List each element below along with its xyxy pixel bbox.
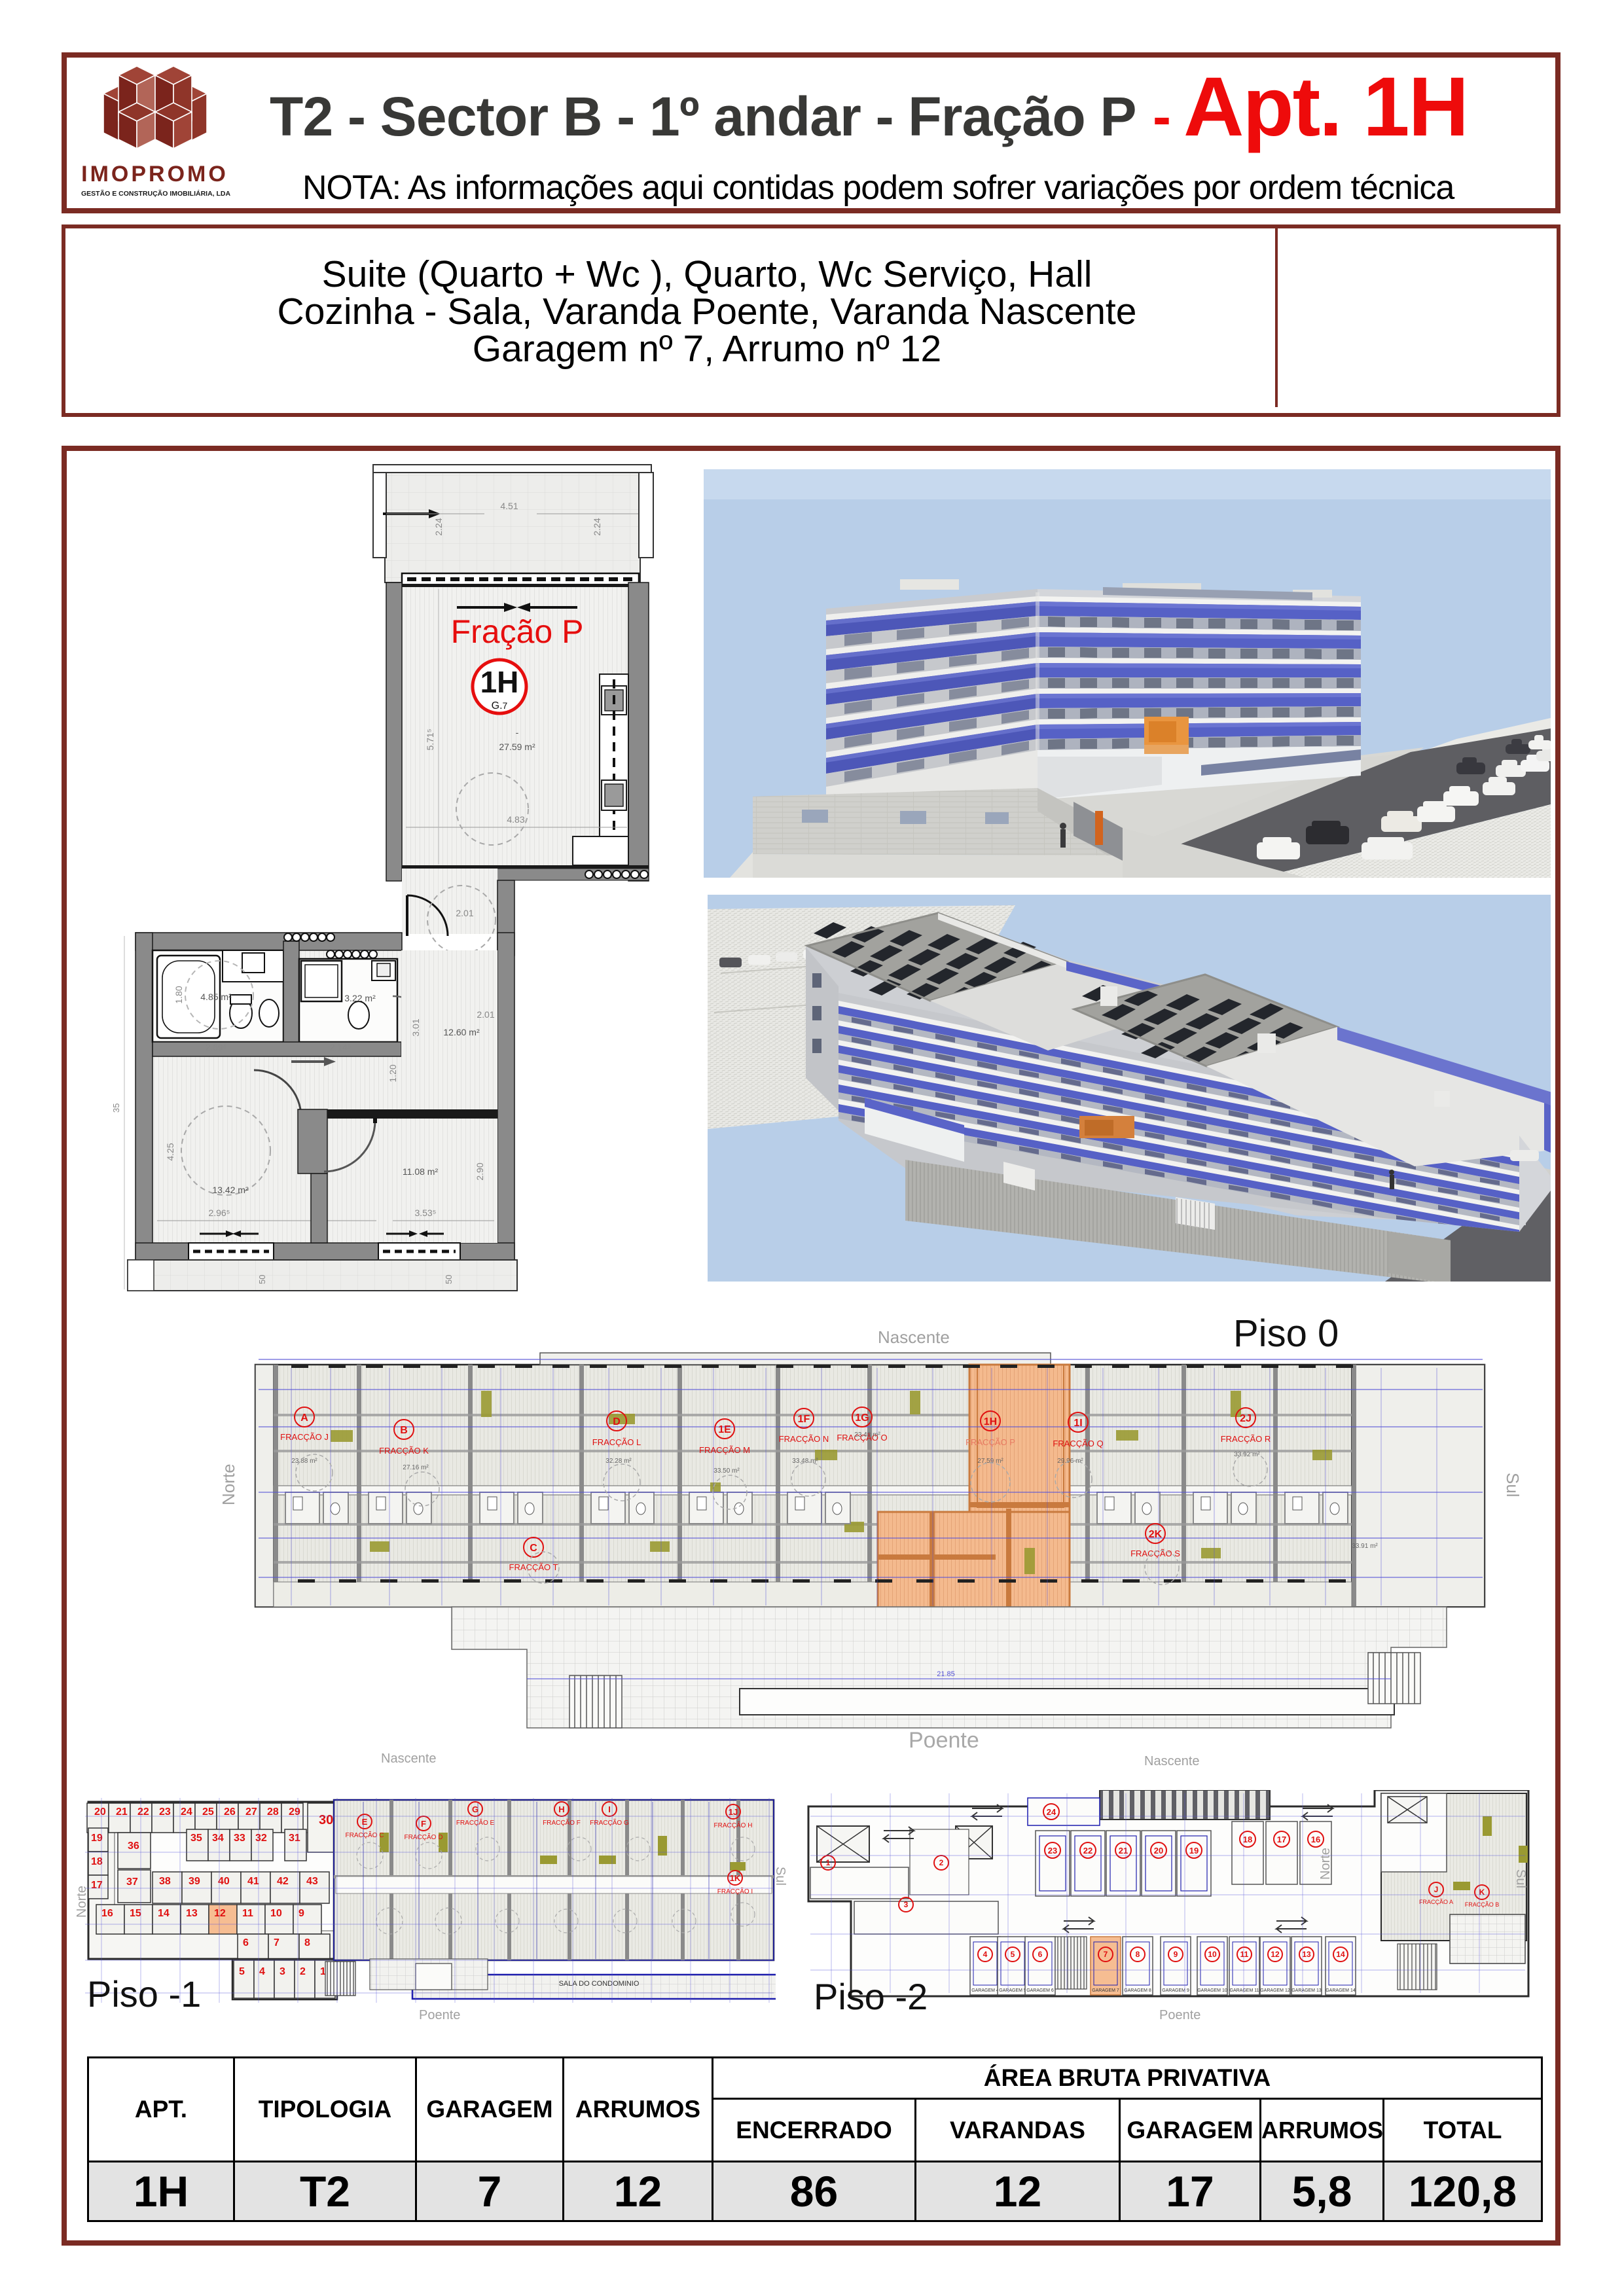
svg-text:GARAGEM 14: GARAGEM 14 — [1326, 1988, 1356, 1993]
svg-text:33: 33 — [234, 1833, 245, 1844]
svg-text:12.60 m²: 12.60 m² — [443, 1027, 480, 1037]
svg-text:FRACÇÃO S: FRACÇÃO S — [1130, 1549, 1180, 1558]
svg-text:FRACÇÃO G: FRACÇÃO G — [590, 1818, 629, 1827]
svg-text:31: 31 — [289, 1833, 300, 1844]
svg-text:24: 24 — [1047, 1807, 1056, 1817]
svg-text:3.01: 3.01 — [410, 1018, 421, 1036]
svg-text:35: 35 — [190, 1833, 202, 1844]
svg-text:-: - — [516, 727, 519, 738]
svg-text:3.22 m²: 3.22 m² — [344, 993, 376, 1003]
svg-text:K: K — [1479, 1888, 1485, 1897]
svg-text:21: 21 — [1119, 1846, 1128, 1856]
svg-text:18: 18 — [91, 1856, 103, 1867]
svg-text:32: 32 — [255, 1833, 267, 1844]
svg-text:GARAGEM 10: GARAGEM 10 — [1197, 1988, 1227, 1993]
svg-text:43: 43 — [306, 1876, 318, 1887]
svg-text:27: 27 — [245, 1806, 257, 1818]
svg-text:FRACÇÃO B: FRACÇÃO B — [1465, 1901, 1500, 1908]
svg-text:4.25: 4.25 — [165, 1143, 175, 1160]
svg-text:18: 18 — [1243, 1835, 1252, 1844]
svg-text:29.96 m²: 29.96 m² — [1057, 1458, 1083, 1465]
svg-text:39: 39 — [189, 1876, 200, 1887]
svg-text:3: 3 — [904, 1900, 909, 1909]
svg-text:G: G — [472, 1804, 478, 1814]
svg-text:1F: 1F — [798, 1414, 810, 1425]
svg-text:GARAGEM 4: GARAGEM 4 — [971, 1988, 999, 1993]
svg-text:H: H — [558, 1804, 564, 1814]
svg-text:FRACÇÃO C: FRACÇÃO C — [346, 1831, 384, 1839]
svg-text:1H: 1H — [480, 665, 519, 699]
svg-text:GARAGEM 11: GARAGEM 11 — [1230, 1988, 1259, 1993]
svg-text:21: 21 — [116, 1806, 128, 1818]
svg-text:13: 13 — [186, 1908, 198, 1919]
svg-text:G.7: G.7 — [492, 700, 508, 711]
svg-text:2.96⁵: 2.96⁵ — [208, 1208, 230, 1218]
svg-text:GARAGEM 12: GARAGEM 12 — [1260, 1988, 1290, 1993]
svg-text:33.91 m²: 33.91 m² — [1352, 1543, 1378, 1550]
svg-text:GARAGEM 8: GARAGEM 8 — [1124, 1988, 1151, 1993]
svg-text:11: 11 — [242, 1908, 253, 1919]
svg-text:FRACÇÃO Q: FRACÇÃO Q — [1053, 1439, 1103, 1448]
svg-text:19: 19 — [1189, 1846, 1199, 1856]
svg-text:FRACÇÃO M: FRACÇÃO M — [699, 1445, 750, 1455]
svg-text:FRACÇÃO P: FRACÇÃO P — [965, 1437, 1015, 1447]
svg-text:GARAGEM 6: GARAGEM 6 — [1026, 1988, 1054, 1993]
svg-text:8: 8 — [304, 1937, 310, 1948]
svg-text:21.85: 21.85 — [937, 1670, 955, 1678]
svg-text:2.24: 2.24 — [592, 518, 602, 535]
svg-text:1: 1 — [826, 1858, 831, 1867]
svg-text:4: 4 — [983, 1950, 988, 1959]
svg-text:2.01: 2.01 — [456, 908, 473, 918]
svg-text:26: 26 — [224, 1806, 236, 1818]
svg-text:9: 9 — [1174, 1950, 1178, 1959]
svg-text:3: 3 — [280, 1966, 285, 1977]
svg-text:12: 12 — [214, 1908, 226, 1919]
svg-text:1I: 1I — [1074, 1418, 1082, 1429]
svg-text:I: I — [608, 1804, 611, 1814]
svg-text:20: 20 — [1154, 1846, 1163, 1856]
svg-text:SALA DO CONDOMINIO: SALA DO CONDOMINIO — [559, 1980, 640, 1988]
svg-text:27.59 m²: 27.59 m² — [499, 742, 535, 752]
svg-text:11.08 m²: 11.08 m² — [403, 1166, 439, 1177]
svg-text:FRACÇÃO H: FRACÇÃO H — [714, 1821, 753, 1829]
svg-text:2K: 2K — [1149, 1529, 1163, 1540]
svg-text:GARAGEM 7: GARAGEM 7 — [1092, 1988, 1119, 1993]
svg-text:4.51: 4.51 — [500, 501, 518, 511]
svg-text:36: 36 — [128, 1840, 139, 1852]
svg-text:22: 22 — [1083, 1846, 1092, 1856]
svg-text:24: 24 — [181, 1806, 192, 1818]
svg-text:13: 13 — [1302, 1950, 1311, 1959]
svg-text:5: 5 — [239, 1966, 245, 1977]
svg-text:8: 8 — [1136, 1950, 1140, 1959]
svg-text:23: 23 — [159, 1806, 171, 1818]
svg-text:E: E — [362, 1817, 368, 1827]
svg-text:FRACÇÃO E: FRACÇÃO E — [456, 1818, 495, 1827]
svg-text:2.24: 2.24 — [433, 518, 444, 535]
svg-text:27.59 m²: 27.59 m² — [977, 1458, 1003, 1465]
svg-text:D: D — [613, 1416, 621, 1427]
svg-text:FRACÇÃO F: FRACÇÃO F — [543, 1818, 581, 1827]
svg-text:5: 5 — [1011, 1950, 1015, 1959]
svg-text:2.90: 2.90 — [475, 1162, 485, 1180]
svg-text:15: 15 — [130, 1908, 141, 1919]
svg-text:1E: 1E — [718, 1424, 731, 1435]
svg-text:GARAGEM 13: GARAGEM 13 — [1291, 1988, 1322, 1993]
svg-text:2.14⁵: 2.14⁵ — [329, 1042, 351, 1052]
svg-text:28: 28 — [267, 1806, 279, 1818]
svg-text:23.88 m²: 23.88 m² — [291, 1458, 317, 1465]
svg-text:FRACÇÃO R: FRACÇÃO R — [1221, 1434, 1271, 1444]
svg-text:B: B — [400, 1425, 408, 1436]
svg-text:30: 30 — [319, 1813, 333, 1827]
svg-text:32.28 m²: 32.28 m² — [605, 1458, 632, 1465]
svg-text:FRACÇÃO K: FRACÇÃO K — [379, 1446, 429, 1456]
svg-text:27.16 m²: 27.16 m² — [403, 1464, 429, 1471]
svg-text:35: 35 — [111, 1103, 121, 1113]
svg-text:22: 22 — [137, 1806, 149, 1818]
svg-text:FRACÇÃO L: FRACÇÃO L — [592, 1437, 641, 1447]
svg-text:6: 6 — [243, 1937, 249, 1948]
svg-text:14: 14 — [158, 1908, 170, 1919]
svg-text:42: 42 — [277, 1876, 289, 1887]
svg-text:29: 29 — [289, 1806, 300, 1818]
svg-text:34: 34 — [212, 1833, 224, 1844]
svg-text:5.71⁵: 5.71⁵ — [425, 728, 435, 750]
svg-text:9: 9 — [298, 1908, 304, 1919]
svg-text:41: 41 — [247, 1876, 259, 1887]
svg-text:14: 14 — [1336, 1950, 1345, 1959]
svg-text:4.83: 4.83 — [507, 814, 524, 825]
svg-text:FRACÇÃO A: FRACÇÃO A — [1419, 1899, 1453, 1905]
svg-text:20: 20 — [94, 1806, 106, 1818]
svg-text:2J: 2J — [1240, 1413, 1252, 1424]
svg-text:25: 25 — [202, 1806, 214, 1818]
svg-text:FRACÇÃO N: FRACÇÃO N — [779, 1434, 829, 1444]
svg-text:33.50 m²: 33.50 m² — [713, 1467, 740, 1475]
svg-text:6: 6 — [1038, 1950, 1043, 1959]
svg-text:4: 4 — [259, 1966, 265, 1977]
svg-text:40: 40 — [218, 1876, 230, 1887]
svg-text:2.69⁵: 2.69⁵ — [205, 1042, 226, 1052]
svg-text:50: 50 — [257, 1275, 267, 1284]
svg-text:12: 12 — [1271, 1950, 1280, 1959]
svg-text:17: 17 — [1277, 1835, 1286, 1844]
svg-text:50: 50 — [444, 1275, 454, 1284]
svg-text:C: C — [530, 1543, 537, 1554]
svg-text:10: 10 — [1208, 1950, 1217, 1959]
svg-text:10: 10 — [270, 1908, 282, 1919]
svg-text:A: A — [300, 1412, 308, 1424]
svg-text:1.20: 1.20 — [388, 1064, 398, 1082]
svg-text:J: J — [1434, 1885, 1439, 1894]
svg-text:2.01: 2.01 — [477, 1009, 494, 1020]
svg-text:1.80: 1.80 — [173, 986, 184, 1003]
svg-text:38: 38 — [159, 1876, 171, 1887]
svg-text:16: 16 — [1311, 1835, 1320, 1844]
svg-text:3.53⁵: 3.53⁵ — [414, 1208, 436, 1218]
svg-text:23: 23 — [1048, 1846, 1057, 1856]
svg-text:FRACÇÃO D: FRACÇÃO D — [405, 1833, 443, 1841]
svg-text:13.42 m²: 13.42 m² — [212, 1185, 249, 1195]
svg-text:FRACÇÃO J: FRACÇÃO J — [280, 1432, 329, 1442]
svg-text:17: 17 — [91, 1880, 103, 1891]
svg-text:4.85 m²: 4.85 m² — [200, 992, 232, 1002]
svg-text:1K: 1K — [730, 1873, 741, 1883]
svg-text:11: 11 — [1240, 1950, 1249, 1959]
svg-text:2: 2 — [300, 1966, 306, 1977]
svg-text:37: 37 — [126, 1876, 138, 1888]
svg-text:1G: 1G — [855, 1412, 869, 1424]
svg-text:2: 2 — [939, 1858, 944, 1867]
svg-text:23.48 m²: 23.48 m² — [854, 1431, 880, 1439]
svg-text:GARAGEM 5: GARAGEM 5 — [999, 1988, 1026, 1993]
svg-text:FRACÇÃO T: FRACÇÃO T — [509, 1562, 558, 1572]
svg-text:19: 19 — [91, 1833, 103, 1844]
svg-text:16: 16 — [101, 1908, 113, 1919]
svg-text:GARAGEM 9: GARAGEM 9 — [1162, 1988, 1189, 1993]
svg-text:Fração P: Fração P — [451, 613, 584, 650]
svg-text:7: 7 — [1104, 1950, 1108, 1959]
svg-text:7: 7 — [274, 1937, 280, 1948]
svg-text:1H: 1H — [984, 1416, 997, 1427]
svg-text:F: F — [421, 1819, 426, 1829]
